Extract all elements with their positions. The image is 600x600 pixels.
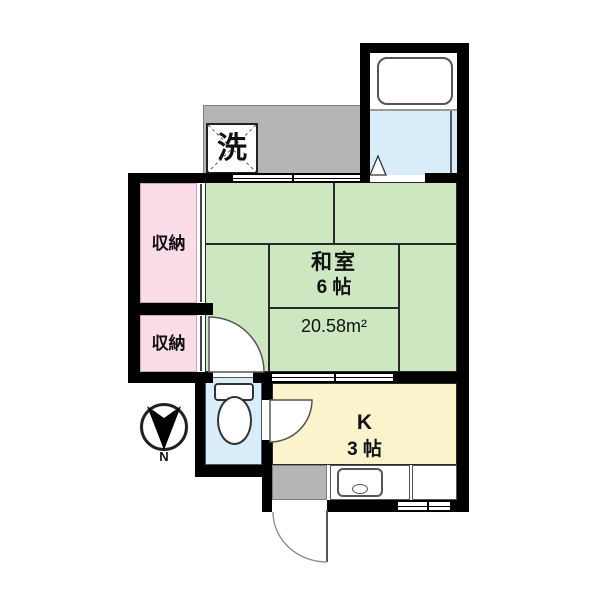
fusuma-line-upper <box>200 184 202 302</box>
wall-bath-left <box>360 43 370 183</box>
sliding-door-midline <box>272 377 393 378</box>
washitsu-size: 6 帖 <box>270 276 398 298</box>
bathroom-divider-line <box>370 109 457 111</box>
genkan-entry-floor <box>272 465 327 500</box>
wall-toilet-bottom <box>195 465 272 477</box>
bathroom-floor <box>370 111 457 175</box>
floor-plan: 洗 収納 収納 和室 6 帖 20.58m² K 3 帖 N <box>0 0 600 600</box>
wall-toilet-left <box>195 372 205 477</box>
bathtub <box>377 57 453 105</box>
counter-divider <box>409 465 413 500</box>
sliding-door-washitsu-kitchen <box>272 372 393 383</box>
closet-upper-label: 収納 <box>140 183 197 303</box>
window-balcony-tick <box>292 173 294 183</box>
window-balcony <box>233 173 360 183</box>
kitchen-size: 3 帖 <box>272 438 457 460</box>
window-kitchen-bottom <box>398 500 450 512</box>
wall-bath-top <box>360 43 469 53</box>
wall-right-outer <box>457 43 469 512</box>
tatami-line-h2 <box>268 307 400 309</box>
wall-closet-divider <box>128 303 213 315</box>
bathroom-inner-line <box>450 111 452 175</box>
sink-drain <box>352 484 368 494</box>
compass-circle <box>140 403 188 451</box>
wall-toilet-right-upper <box>262 372 272 400</box>
washer-label: 洗 <box>206 123 258 174</box>
window-balcony-midline <box>233 178 360 179</box>
wall-kitchen-bottom-b <box>450 500 469 512</box>
wall-bath-bottom <box>425 173 457 183</box>
wall-kitchen-bottom-a <box>327 500 398 512</box>
wall-bottom-c <box>393 372 457 383</box>
fusuma-line-lower <box>200 316 202 371</box>
tatami-line-v1 <box>333 182 335 243</box>
window-kitchen-midline <box>398 506 450 507</box>
closet-lower-label: 収納 <box>140 315 197 372</box>
washitsu-area: 20.58m² <box>270 315 398 337</box>
tatami-line-h1 <box>205 243 457 245</box>
compass-north-label: N <box>148 449 180 463</box>
kitchen-name: K <box>272 410 457 434</box>
washitsu-name: 和室 <box>270 250 398 274</box>
entrance-door-arc <box>273 512 327 562</box>
sliding-door-tick <box>334 372 336 383</box>
window-kitchen-tick <box>427 500 429 512</box>
wall-closet-top <box>128 173 233 183</box>
toilet-bowl <box>217 396 252 445</box>
wall-left-outer <box>128 173 140 383</box>
